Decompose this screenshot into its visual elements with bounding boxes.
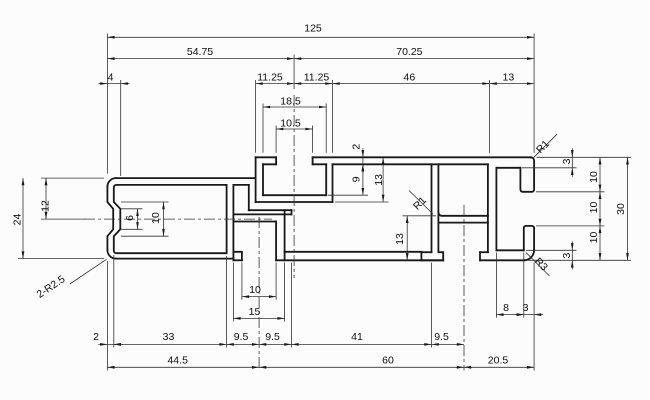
svg-text:3: 3 — [561, 253, 573, 259]
svg-text:70.25: 70.25 — [396, 46, 422, 58]
svg-text:18.5: 18.5 — [280, 96, 301, 108]
svg-text:6: 6 — [124, 215, 136, 221]
svg-text:10.5: 10.5 — [280, 118, 301, 130]
svg-text:10: 10 — [150, 212, 162, 224]
svg-text:24: 24 — [11, 214, 23, 226]
svg-text:10: 10 — [249, 284, 261, 296]
svg-text:9.5: 9.5 — [434, 331, 449, 343]
svg-text:20.5: 20.5 — [488, 355, 509, 367]
svg-text:3: 3 — [561, 158, 573, 164]
svg-text:9.5: 9.5 — [265, 331, 280, 343]
svg-text:60: 60 — [382, 355, 394, 367]
svg-text:46: 46 — [404, 72, 416, 84]
svg-text:9.5: 9.5 — [234, 331, 249, 343]
svg-text:15: 15 — [249, 306, 261, 318]
svg-text:13: 13 — [373, 174, 385, 186]
svg-text:125: 125 — [304, 23, 322, 35]
svg-text:10: 10 — [588, 171, 600, 183]
svg-text:8: 8 — [503, 302, 509, 314]
svg-text:13: 13 — [394, 233, 406, 245]
svg-text:9: 9 — [351, 176, 363, 182]
svg-text:12: 12 — [39, 200, 51, 212]
svg-text:11.25: 11.25 — [304, 72, 330, 84]
svg-text:33: 33 — [163, 331, 175, 343]
svg-text:3: 3 — [523, 302, 529, 314]
svg-text:10: 10 — [588, 202, 600, 214]
svg-text:44.5: 44.5 — [167, 355, 188, 367]
svg-text:13: 13 — [503, 72, 515, 84]
svg-text:30: 30 — [615, 203, 627, 215]
svg-text:10: 10 — [588, 232, 600, 244]
svg-text:2: 2 — [350, 144, 362, 150]
svg-text:54.75: 54.75 — [187, 46, 213, 58]
svg-text:11.25: 11.25 — [257, 72, 283, 84]
svg-text:41: 41 — [351, 331, 363, 343]
svg-text:4: 4 — [108, 72, 114, 84]
svg-text:2: 2 — [93, 331, 99, 343]
